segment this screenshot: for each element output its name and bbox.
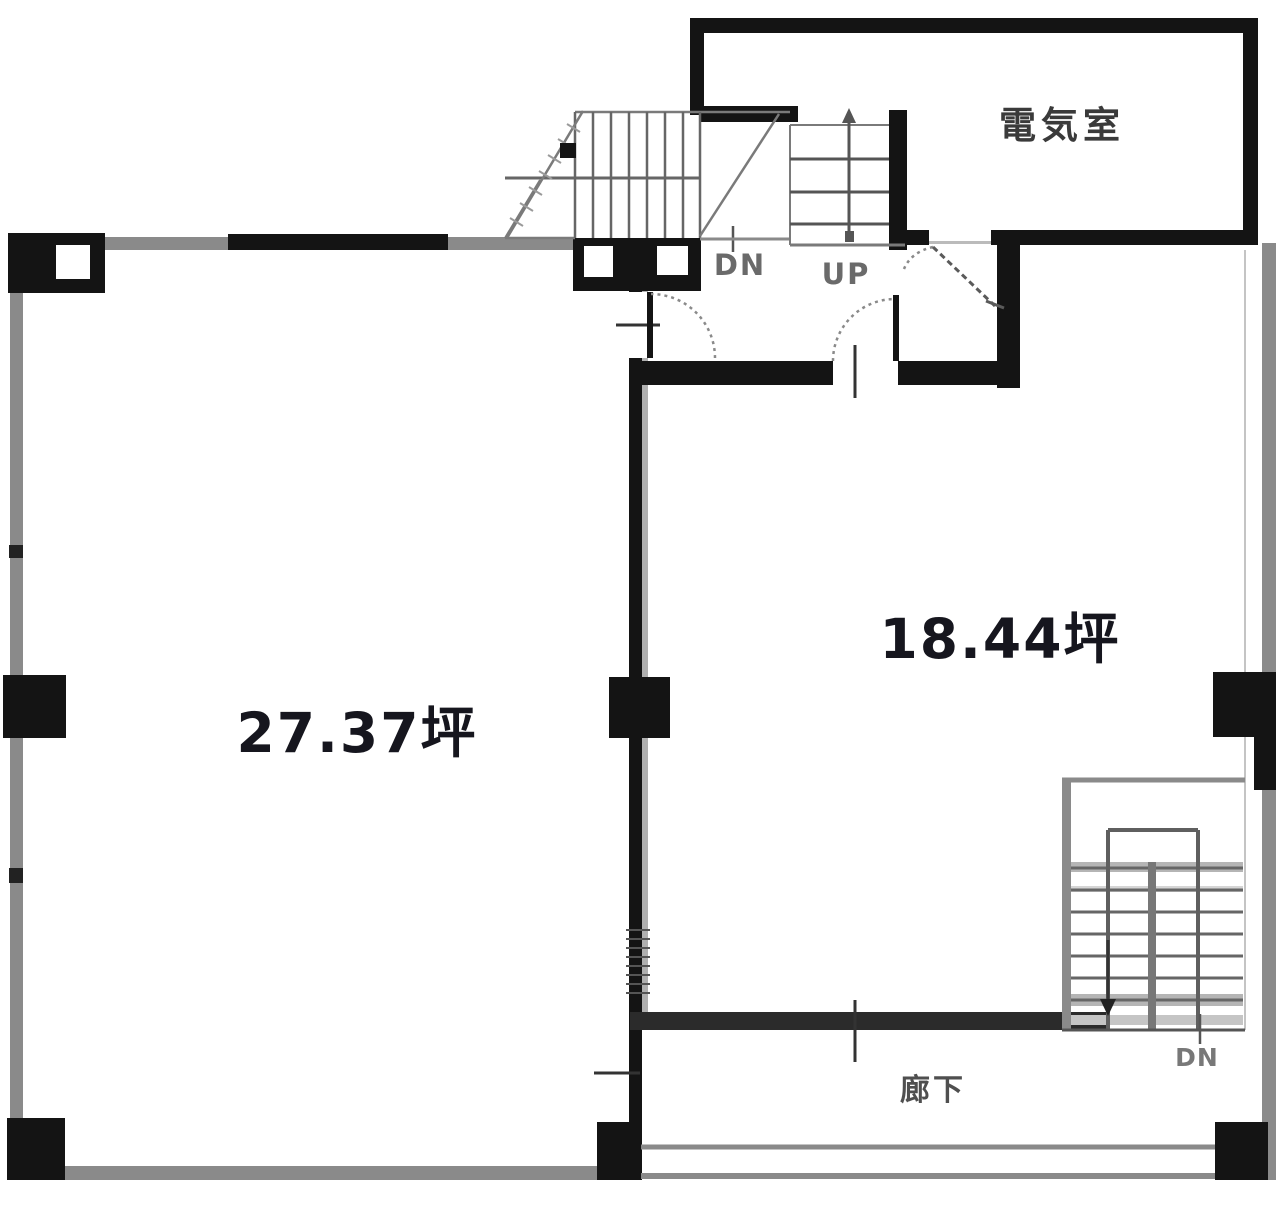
bottom-dn-label: DN [1175,1043,1219,1072]
left-room-top-wall-black [228,234,448,250]
corridor-label: 廊下 [900,1073,966,1108]
stair-top-wall [700,106,798,122]
pillar-top-left-core [56,245,90,279]
top-up-label: UP [822,257,871,291]
stair-left-wall [1062,780,1071,1030]
up-arrow-tail [845,231,854,242]
top-left-wall-stub [690,18,704,115]
pillar-bottom-left [7,1118,65,1180]
pillar-mid-left [3,675,66,738]
stair-shade-band [1071,1015,1243,1025]
left-room-bottom-wall [8,1166,610,1180]
stair-center-divider [1148,862,1156,1030]
door-leaf [647,292,653,358]
pillar-stair-core [584,246,613,277]
electrical-room-label: 電気室 [999,104,1125,147]
stair-pillar-block [573,238,701,291]
left-room-area-label: 27.37坪 [237,701,478,765]
pillar-mid-right-ext [1254,672,1276,790]
electrical-bottom-wall-right [991,230,1258,245]
right-room-bottom-wall [630,1012,1108,1030]
middle-wall-shadow [642,288,648,1012]
pillar-bottom-right [1215,1122,1268,1180]
landing-bottom-wall-right [898,361,1020,385]
right-room-area-label: 18.44坪 [880,607,1121,671]
landing-bottom-wall-left [630,361,833,385]
up-stair-right-wall [889,110,907,250]
left-wall-tick [9,545,23,558]
pillar-center [609,677,670,738]
pillar-mid-right [1213,672,1261,737]
floor-plan: 電気室 [0,0,1280,1208]
left-wall-tick [9,868,23,883]
door-leaf [893,295,899,361]
pillar-bottom-middle [597,1122,641,1180]
stair-break-mark [560,143,576,158]
door-threshold-line [929,241,991,244]
top-outer-wall [690,18,1258,33]
top-dn-label: DN [714,248,766,282]
top-right-outer-wall [1243,18,1258,244]
pillar-stair-core [657,246,688,275]
